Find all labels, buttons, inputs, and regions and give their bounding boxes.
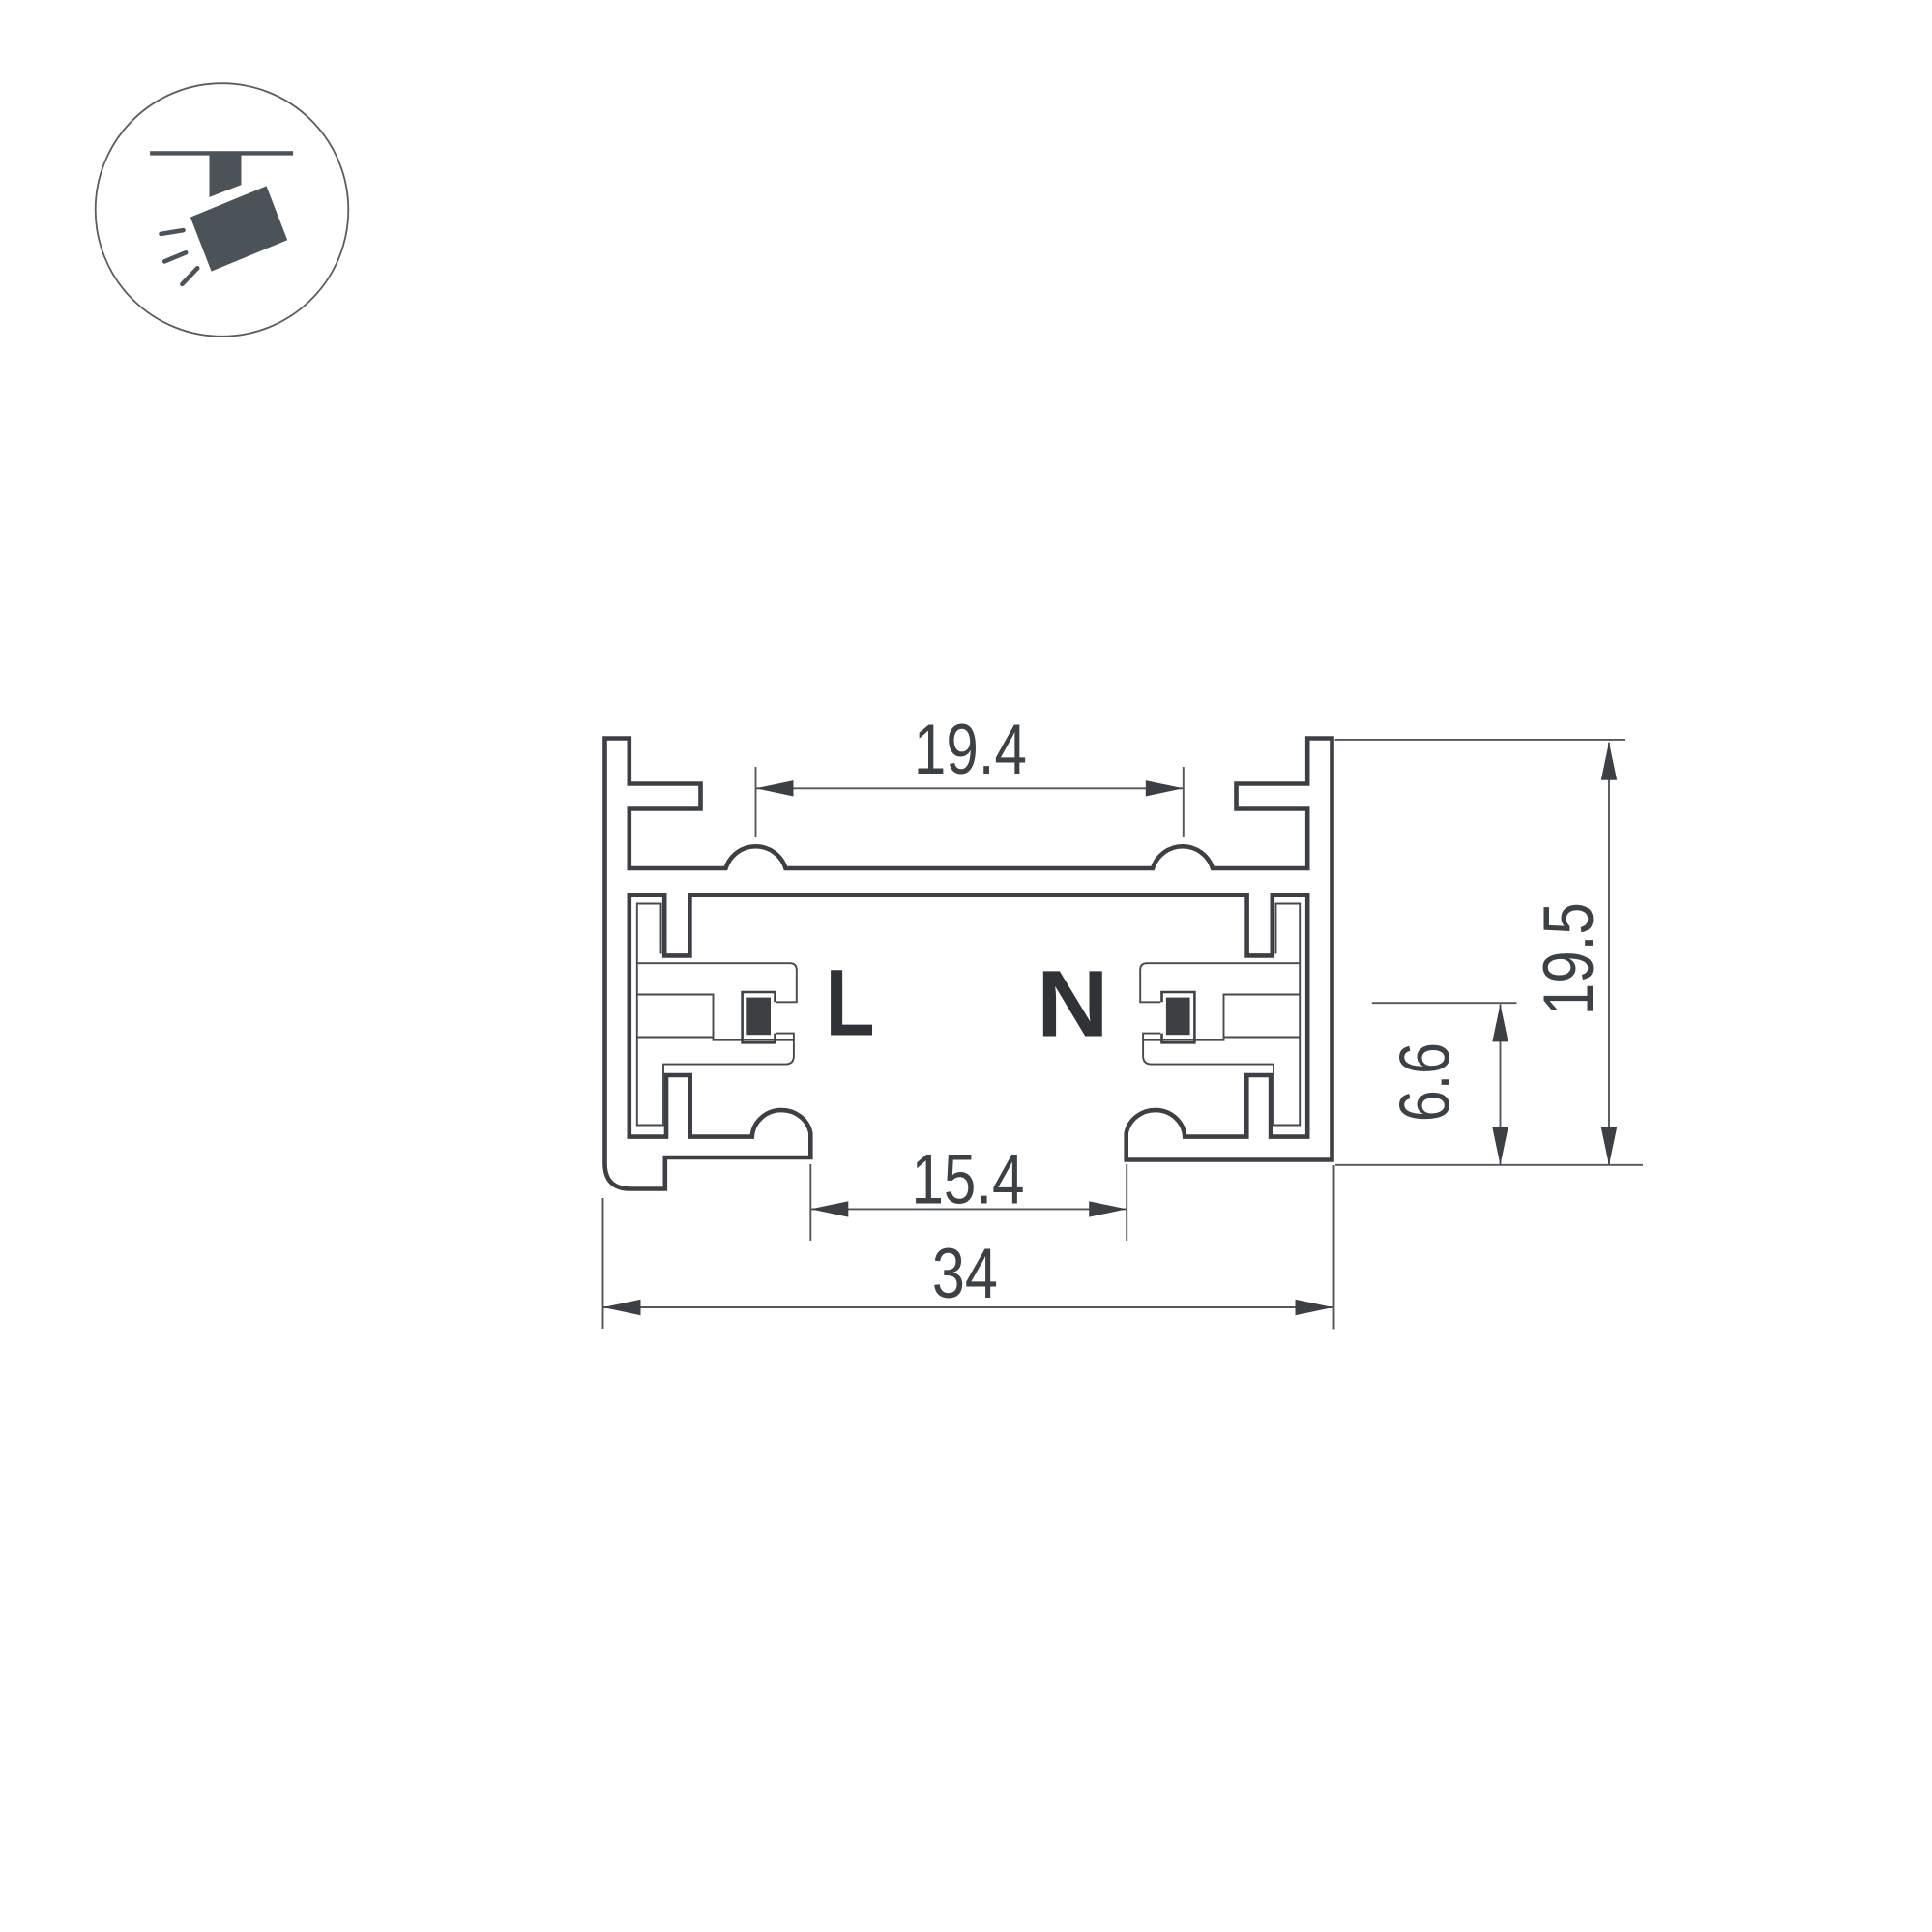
- svg-text:15.4: 15.4: [912, 1139, 1025, 1219]
- svg-text:19.5: 19.5: [1528, 902, 1608, 1015]
- svg-text:L: L: [826, 951, 875, 1056]
- svg-text:19.4: 19.4: [914, 709, 1027, 789]
- svg-text:6.6: 6.6: [1385, 1042, 1465, 1122]
- svg-text:34: 34: [932, 1233, 998, 1313]
- svg-text:N: N: [1037, 951, 1109, 1057]
